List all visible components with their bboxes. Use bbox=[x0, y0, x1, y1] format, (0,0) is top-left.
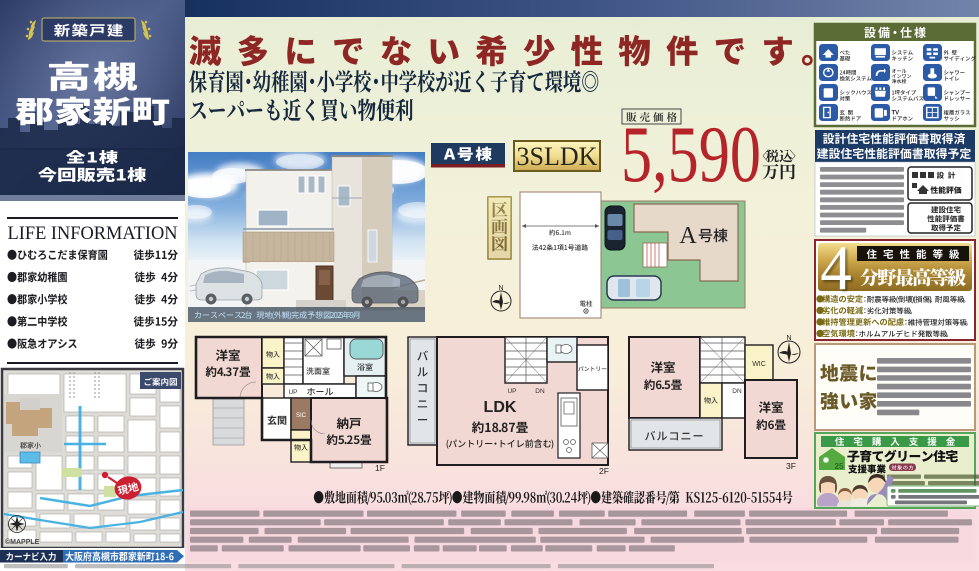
svg-text:N: N bbox=[786, 335, 791, 342]
svg-text:A: A bbox=[679, 223, 697, 249]
svg-text:25: 25 bbox=[835, 462, 844, 471]
svg-text:LDK: LDK bbox=[484, 399, 517, 416]
svg-text:SIC: SIC bbox=[296, 413, 307, 419]
svg-text:UP: UP bbox=[288, 389, 297, 396]
svg-text:©MAPPLE: ©MAPPLE bbox=[5, 538, 40, 546]
svg-text:LIFE INFORMATION: LIFE INFORMATION bbox=[8, 223, 178, 244]
svg-text:4: 4 bbox=[820, 233, 852, 303]
svg-text:3F: 3F bbox=[786, 461, 796, 471]
svg-text:N: N bbox=[498, 285, 503, 292]
svg-text:UP: UP bbox=[507, 388, 516, 395]
svg-text:DN: DN bbox=[732, 388, 742, 395]
svg-text:1F: 1F bbox=[375, 463, 385, 473]
svg-text:2F: 2F bbox=[599, 466, 609, 476]
svg-text:3SLDK: 3SLDK bbox=[517, 142, 598, 171]
svg-text:TV: TV bbox=[892, 111, 900, 117]
svg-text:5,590: 5,590 bbox=[621, 109, 761, 199]
svg-text:WIC: WIC bbox=[752, 361, 766, 368]
svg-text:DN: DN bbox=[535, 388, 545, 395]
